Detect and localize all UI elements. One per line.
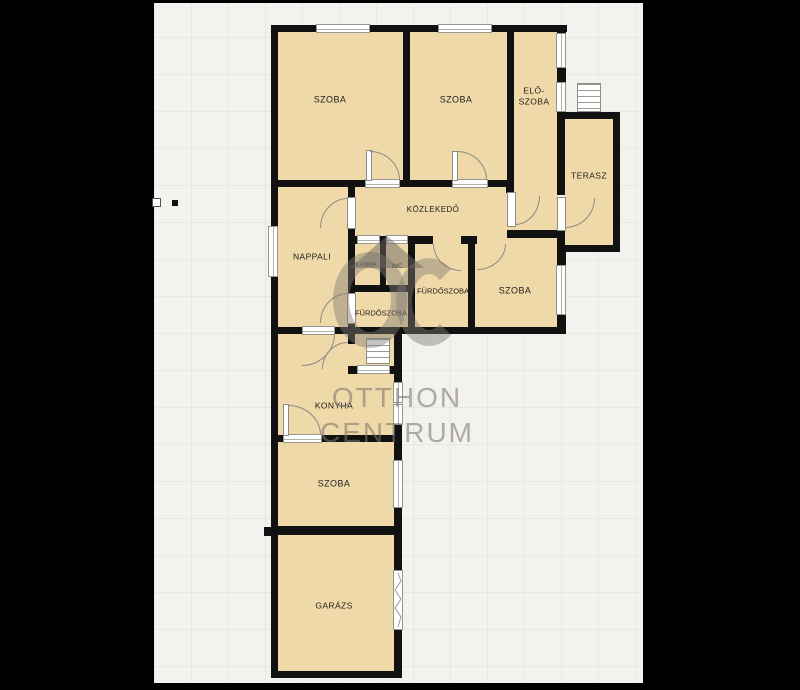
wall bbox=[271, 442, 278, 526]
room-label-furdoszoba-felso: FÜRDŐSZOBA bbox=[417, 286, 469, 295]
wall bbox=[355, 285, 415, 292]
wall bbox=[557, 112, 620, 119]
wall bbox=[322, 435, 402, 442]
wall bbox=[390, 366, 402, 374]
wall bbox=[557, 245, 620, 252]
room-label-kamra: KAMRA bbox=[355, 262, 376, 270]
room-label-furdoszoba-also: FÜRDŐSZOBA bbox=[355, 308, 407, 317]
wall bbox=[403, 32, 410, 180]
room-label-garazs: GARÁZS bbox=[315, 601, 352, 612]
wall bbox=[394, 535, 402, 570]
room-label-eloszoba-line1: ELŐ- bbox=[519, 85, 550, 96]
room-label-nappali: NAPPALI bbox=[293, 252, 331, 263]
wall bbox=[271, 526, 402, 535]
floorplan-canvas: SZOBA SZOBA ELŐ- SZOBA TERASZ KÖZLEKEDŐ … bbox=[0, 0, 800, 690]
frame-top bbox=[0, 0, 800, 3]
room-label-eloszoba-line2: SZOBA bbox=[519, 96, 550, 107]
wall bbox=[380, 244, 386, 289]
wall bbox=[461, 236, 477, 244]
window bbox=[386, 235, 408, 244]
wall bbox=[613, 112, 620, 252]
window bbox=[316, 24, 370, 33]
wall bbox=[488, 180, 514, 187]
room-label-kozlekedo: KÖZLEKEDŐ bbox=[407, 205, 460, 215]
wall bbox=[394, 334, 402, 382]
wall bbox=[348, 366, 357, 374]
vestibule-stairs-icon bbox=[366, 338, 390, 364]
room-label-szoba-kozep: SZOBA bbox=[499, 285, 532, 296]
window bbox=[393, 382, 403, 403]
garage-door-zigzag-icon bbox=[394, 571, 402, 629]
frame-right bbox=[643, 0, 800, 690]
window bbox=[556, 265, 566, 315]
floor-bottom-block bbox=[278, 334, 395, 671]
entry-stairs-icon bbox=[577, 83, 601, 112]
floor-top-block bbox=[278, 32, 558, 180]
window bbox=[393, 404, 403, 425]
wall bbox=[271, 277, 278, 334]
wall bbox=[271, 25, 278, 226]
wall bbox=[271, 180, 365, 187]
frame-bottom bbox=[0, 683, 800, 690]
wall bbox=[335, 327, 566, 334]
wall bbox=[394, 508, 402, 526]
wall bbox=[271, 671, 402, 678]
room-label-eloszoba: ELŐ- SZOBA bbox=[519, 85, 550, 106]
wall bbox=[557, 68, 566, 82]
garage-door-symbol bbox=[393, 570, 403, 630]
room-label-szoba-top-mid: SZOBA bbox=[440, 94, 473, 105]
wall bbox=[271, 535, 278, 678]
wall bbox=[271, 334, 278, 442]
wall bbox=[408, 236, 433, 244]
wall bbox=[348, 236, 357, 244]
wall bbox=[348, 334, 355, 344]
edge-marker-dot-icon bbox=[172, 200, 178, 206]
wall bbox=[400, 180, 452, 187]
edge-marker-square-icon bbox=[152, 198, 161, 207]
wall bbox=[394, 442, 402, 460]
room-label-wc: WC bbox=[392, 263, 403, 271]
window bbox=[268, 226, 278, 277]
door-leaf bbox=[347, 197, 356, 229]
room-label-szoba-also: SZOBA bbox=[318, 478, 351, 489]
window bbox=[357, 365, 390, 374]
window bbox=[393, 460, 403, 508]
wall bbox=[557, 252, 566, 265]
wall bbox=[468, 244, 475, 334]
wall bbox=[271, 435, 283, 442]
window bbox=[357, 235, 380, 244]
room-label-konyha: KONYHA bbox=[315, 401, 353, 412]
window bbox=[556, 33, 566, 68]
room-label-terasz: TERASZ bbox=[571, 171, 607, 182]
room-label-szoba-top-left: SZOBA bbox=[314, 94, 347, 105]
window bbox=[438, 24, 492, 33]
wall bbox=[507, 230, 564, 238]
window bbox=[556, 82, 566, 112]
frame-left bbox=[0, 0, 154, 690]
wall bbox=[557, 118, 565, 195]
wall bbox=[507, 32, 514, 180]
wall bbox=[271, 327, 302, 334]
